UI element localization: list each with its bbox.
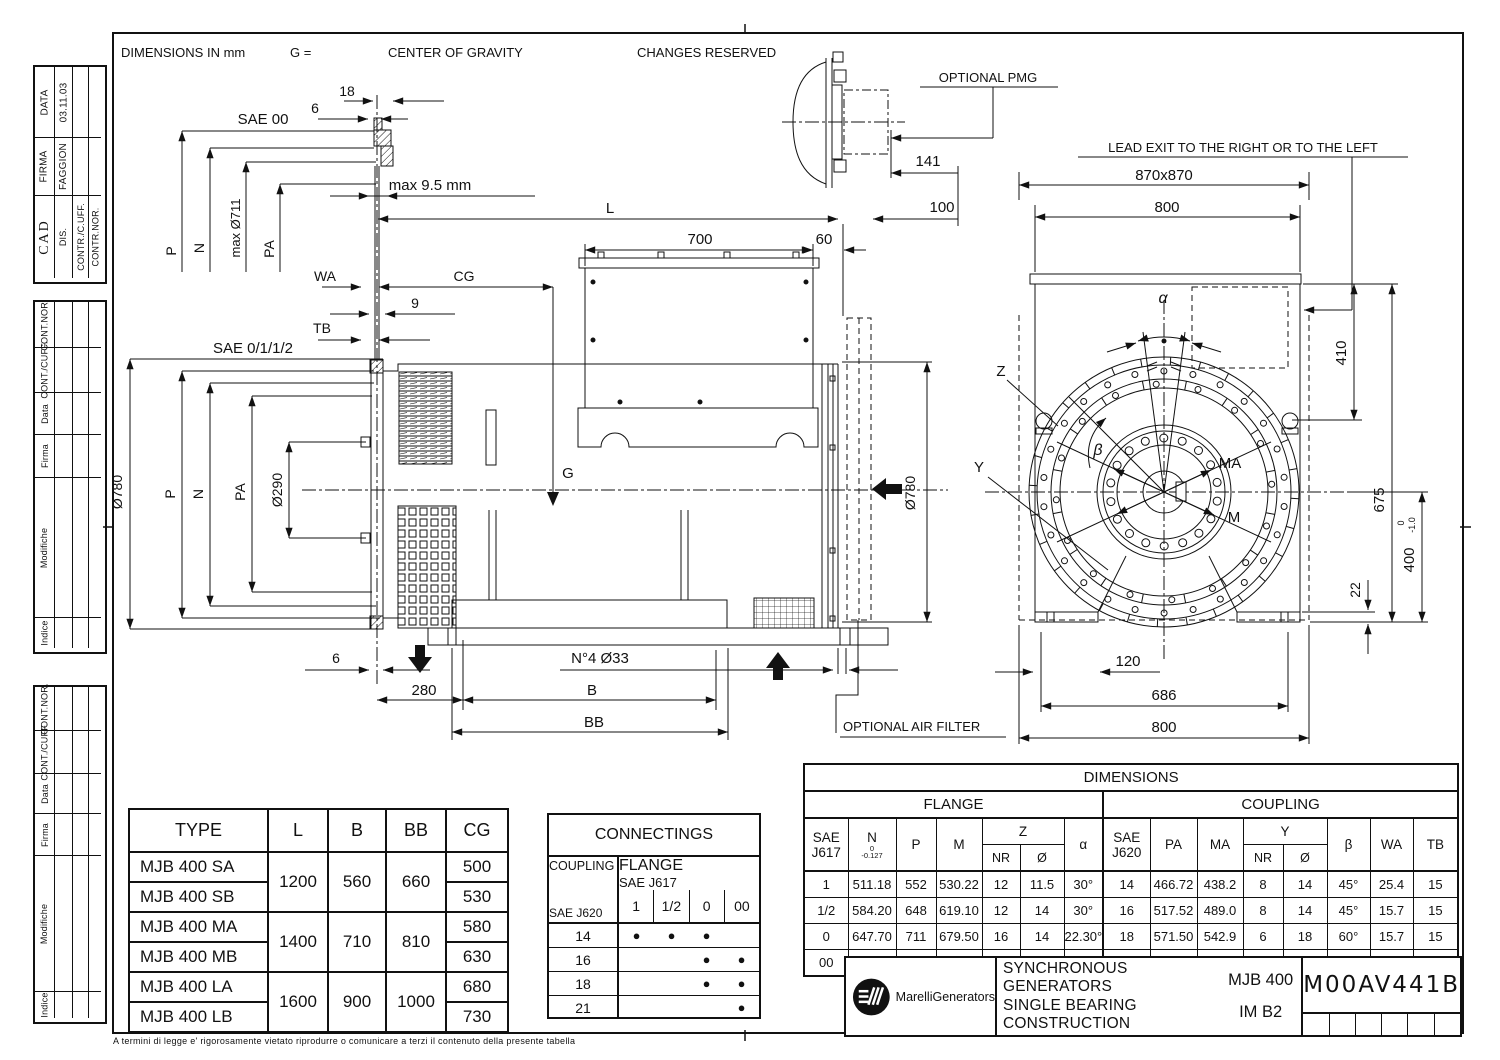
label-optional-air-filter: OPTIONAL AIR FILTER — [843, 719, 980, 734]
h-tb: TB — [1413, 818, 1458, 871]
coupling-band: COUPLING — [1103, 791, 1458, 818]
air-filter-dashed — [847, 318, 871, 620]
flange-col-1: 1 — [619, 890, 653, 922]
dim-410: 410 — [1333, 340, 1350, 365]
col-cg: CG — [446, 809, 508, 852]
col-type: TYPE — [129, 809, 268, 852]
flange-header: FLANGE — [619, 857, 759, 875]
dim-400: 400 — [1401, 547, 1418, 572]
h-sae-j617: SAEJ617 — [804, 818, 848, 871]
dim-280: 280 — [411, 682, 436, 699]
note-center-of-gravity: CENTER OF GRAVITY — [388, 45, 523, 60]
product-line-2: SINGLE BEARING CONSTRUCTION — [1003, 997, 1228, 1033]
dim-800-bot: 800 — [1151, 719, 1176, 736]
h-beta: β — [1327, 818, 1370, 871]
h-z: Z — [982, 818, 1064, 845]
drawing-number: M00AV441B — [1303, 958, 1460, 1012]
dim-b: B — [587, 682, 597, 699]
dim-700: 700 — [687, 231, 712, 248]
terminal-box — [578, 252, 819, 447]
sae-j617-header: SAE J617 — [619, 875, 759, 890]
type-cell: MJB 400 SA — [129, 852, 268, 882]
connectings-table: CONNECTINGS COUPLING SAE J620 FLANGE SAE… — [547, 813, 761, 1019]
h-p: P — [896, 818, 936, 871]
h-z-nr: NR — [982, 845, 1020, 872]
engineering-drawing-page: { "page": { "note_dimensions": "DIMENSIO… — [0, 0, 1500, 1060]
note-changes-reserved: CHANGES RESERVED — [637, 45, 776, 60]
table-row: MJB 400 MA1400710810580 — [129, 912, 508, 942]
dim-n: N — [190, 489, 206, 499]
dim-18: 18 — [339, 83, 355, 99]
col-bb: BB — [386, 809, 446, 852]
dim-100: 100 — [929, 199, 954, 216]
connectings-row: 21 ● — [549, 995, 759, 1019]
dimensions-title: DIMENSIONS — [804, 764, 1458, 791]
flange-col-half: 1/2 — [653, 890, 688, 922]
dim-dia780-left: Ø780 — [109, 475, 125, 509]
col-l: L — [268, 809, 328, 852]
lead-exit-box — [1192, 287, 1288, 368]
label-ma: MA — [1219, 455, 1242, 472]
dim-p: P — [162, 489, 178, 498]
front-annotations — [988, 332, 1271, 570]
model-name: MJB 400 — [1228, 971, 1293, 990]
h-z-dia: Ø — [1020, 845, 1064, 872]
dim-dia780-right: Ø780 — [902, 476, 918, 510]
dim-141: 141 — [915, 153, 940, 170]
side-dimensions — [130, 87, 1058, 740]
dim-400-tol-hi: 0 — [1396, 520, 1406, 525]
h-alpha: α — [1064, 818, 1103, 871]
label-lead-exit: LEAD EXIT TO THE RIGHT OR TO THE LEFT — [1108, 140, 1378, 155]
type-table: TYPE L B BB CG MJB 400 SA1200560660500 M… — [128, 808, 509, 1033]
connectings-title: CONNECTINGS — [549, 815, 759, 857]
table-row: MJB 400 SA1200560660500 — [129, 852, 508, 882]
label-beta: β — [1092, 442, 1102, 459]
air-in-arrow-icon — [766, 652, 790, 680]
marelli-logo-icon — [852, 977, 891, 1017]
label-z: Z — [996, 363, 1005, 380]
label-cg: CG — [454, 268, 475, 284]
flange-band: FLANGE — [804, 791, 1103, 818]
h-n: N0-0.127 — [848, 818, 896, 871]
side-view: SAE 00 18 6 max 9.5 mm L 700 60 141 100 … — [109, 52, 1058, 740]
brand-name: MarelliGenerators — [896, 990, 995, 1004]
connectings-row: 18 ●● — [549, 971, 759, 995]
dim-400-tol-lo: -1.0 — [1407, 517, 1417, 533]
dimensions-table: DIMENSIONS FLANGE COUPLING SAEJ617 N0-0.… — [803, 763, 1459, 977]
side-labels: SAE 00 18 6 max 9.5 mm L 700 60 141 100 … — [109, 70, 1037, 734]
dim-n4-d33: N°4 Ø33 — [571, 650, 629, 667]
note-dimensions: DIMENSIONS IN mm — [121, 45, 245, 60]
table-row: 1/2584.20648619.10121430° 16517.52489.08… — [804, 898, 1458, 924]
dim-870x870: 870x870 — [1135, 167, 1193, 184]
air-in-left-arrow-icon — [872, 478, 902, 500]
h-y: Y — [1243, 818, 1327, 845]
air-out-arrow-icon — [408, 645, 432, 673]
mounting-code: IM B2 — [1239, 1003, 1282, 1022]
dim-bb: BB — [584, 714, 604, 731]
product-line-1: SYNCHRONOUS GENERATORS — [1003, 960, 1228, 996]
sae-flange — [361, 359, 383, 629]
flange-col-0: 0 — [689, 890, 724, 922]
connectings-row: 14 ●●● — [549, 924, 759, 947]
ref-pa-top: PA — [261, 240, 277, 258]
front-dimensions — [995, 157, 1428, 744]
h-ma: MA — [1197, 818, 1243, 871]
ref-n-top: N — [191, 243, 207, 253]
table-row: MJB 400 LA16009001000680 — [129, 972, 508, 1002]
dim-22: 22 — [1347, 582, 1363, 598]
label-optional-pmg: OPTIONAL PMG — [939, 70, 1037, 85]
table-row: 0647.70711679.50161422.30° 18571.50542.9… — [804, 924, 1458, 950]
revision-cells — [1303, 1012, 1460, 1035]
dim-6-top: 6 — [311, 100, 319, 116]
h-m: M — [936, 818, 982, 871]
dim-L: L — [606, 200, 614, 217]
ref-p-top: P — [163, 246, 179, 255]
dim-dia290: Ø290 — [269, 473, 285, 507]
header-notes: DIMENSIONS IN mm G = CENTER OF GRAVITY C… — [121, 45, 776, 60]
label-sae00: SAE 00 — [238, 111, 289, 128]
dim-686: 686 — [1151, 687, 1176, 704]
front-view: LEAD EXIT TO THE RIGHT OR TO THE LEFT 87… — [974, 140, 1428, 744]
label-tb: TB — [313, 320, 331, 336]
dim-6-bot: 6 — [332, 650, 340, 666]
title-block: MarelliGenerators SYNCHRONOUS GENERATORS… — [844, 956, 1462, 1037]
dim-9: 9 — [411, 295, 419, 311]
brand-cell: MarelliGenerators — [846, 958, 997, 1035]
h-y-dia: Ø — [1283, 845, 1327, 872]
flange-col-00: 00 — [724, 890, 759, 922]
label-sae0112: SAE 0/1/1/2 — [213, 340, 293, 357]
note-g: G = — [290, 45, 311, 60]
label-wa: WA — [314, 268, 337, 284]
pmg-detail — [782, 52, 905, 188]
dim-pa: PA — [232, 483, 248, 501]
dim-800-top: 800 — [1154, 199, 1179, 216]
dim-max95: max 9.5 mm — [389, 177, 472, 194]
connectings-row: 16 ●● — [549, 947, 759, 971]
ref-max711: max Ø711 — [228, 198, 243, 257]
type-table-header: TYPE L B BB CG — [129, 809, 508, 852]
dim-675: 675 — [1371, 487, 1388, 512]
coupling-header: COUPLING — [549, 859, 617, 873]
h-pa: PA — [1150, 818, 1197, 871]
table-row: 1511.18552530.221211.530° 14466.72438.28… — [804, 871, 1458, 898]
h-wa: WA — [1370, 818, 1413, 871]
legal-notice: A termini di legge e' rigorosamente viet… — [113, 1036, 575, 1046]
label-g: G — [562, 465, 574, 482]
col-b: B — [328, 809, 386, 852]
dim-60: 60 — [816, 231, 833, 248]
label-m: M — [1228, 509, 1241, 526]
generator-body — [383, 364, 888, 645]
label-y: Y — [974, 459, 984, 476]
h-y-nr: NR — [1243, 845, 1283, 872]
h-sae-j620: SAEJ620 — [1103, 818, 1150, 871]
label-alpha: α — [1158, 290, 1168, 307]
dim-120: 120 — [1115, 653, 1140, 670]
sae-j620-header: SAE J620 — [549, 906, 617, 920]
